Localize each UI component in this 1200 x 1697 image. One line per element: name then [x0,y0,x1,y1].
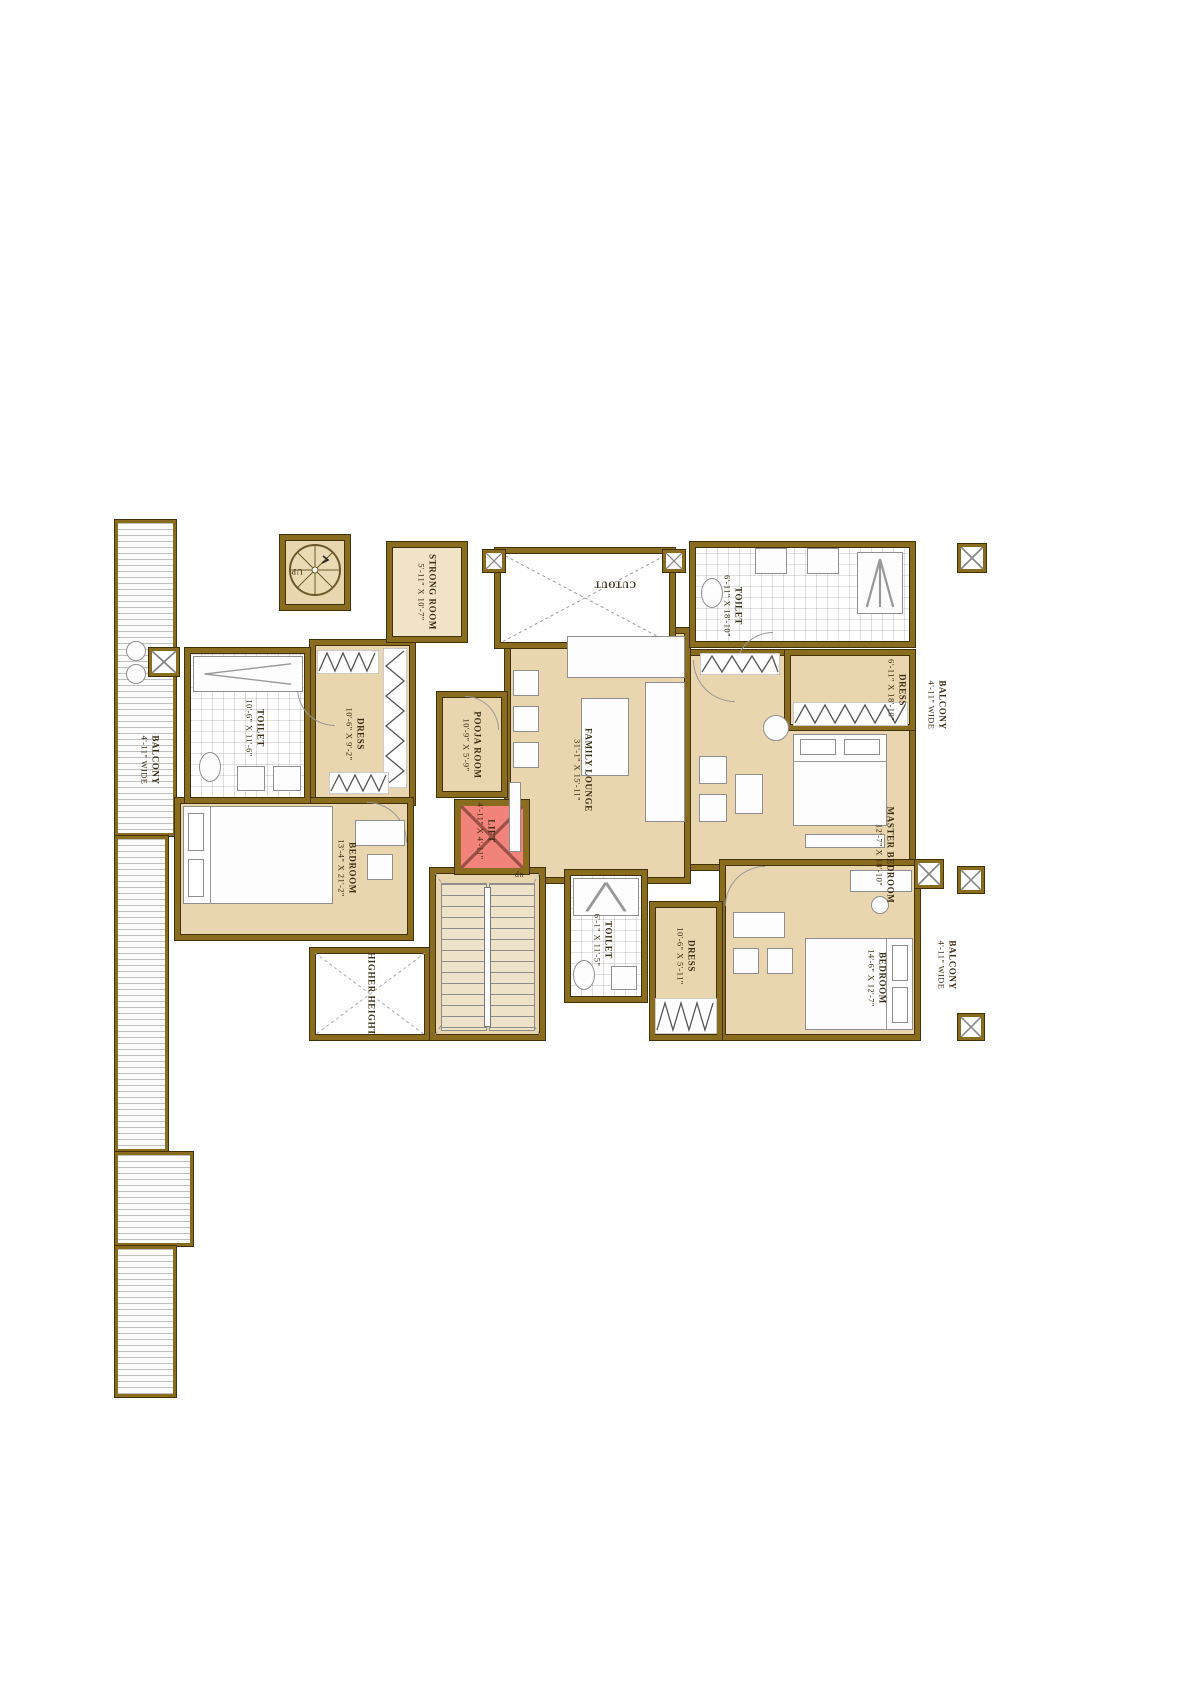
stair-flight [441,883,487,1031]
closet-zigzag-icon [383,648,407,788]
label-dress-master: DRESS 6'-11" X 18'-10" [886,659,907,721]
bed-icon [183,806,333,904]
shower-icon [573,878,639,916]
bed-icon [793,734,887,826]
label-stair-up: up [514,871,523,881]
basin-icon [611,966,637,990]
basin-icon [807,548,839,574]
round-table-icon [763,715,789,741]
closet-zigzag-icon [700,653,780,675]
planter-box-icon [483,550,505,572]
closet-zigzag-icon [329,772,389,794]
label-master-bedroom: MASTER BEDROOM 12'-7" X 18'-10" [874,807,895,904]
armchair-icon [513,706,539,732]
label-lift: LIFT 4'-11" X 4'-11" [475,803,496,860]
armchair-icon [367,854,393,880]
tv-console-icon [509,782,521,852]
bed-icon [805,938,913,1030]
planter-box-icon [958,867,984,893]
planter-box-icon [149,648,179,676]
armchair-icon [513,670,539,696]
label-pooja-room: POOJA ROOM 10'-9" X 5'-9" [461,711,482,778]
label-cutout-top: CUTOUT [594,578,636,589]
planter-box-icon [915,860,943,888]
sofa-icon [567,636,685,678]
dresser-icon [805,834,885,848]
bathtub-icon [193,656,303,692]
label-bedroom-left: BEDROOM 13'-4" X 21'-2" [336,839,357,897]
sofa-icon [355,820,405,846]
armchair-icon [735,774,763,814]
label-toilet-bottom: TOILET 6'-1" X 11'-5" [592,914,613,967]
label-cutout-bottom: HIGHER HEIGHT [365,952,376,1036]
armchair-icon [767,948,793,974]
room-staircase [430,868,545,1040]
label-strong-room: STRONG ROOM 5'-11" X 10'-7" [416,554,437,630]
label-toilet-left: TOILET 10'-6" X 11'-6" [244,699,265,756]
floor-plan-canvas: STRONG ROOM 5'-11" X 10'-7" CUTOUT TOILE… [0,0,1200,1697]
sofa-icon [733,912,785,938]
planter-circle [126,641,146,661]
basin-icon [237,766,265,791]
sofa-icon [645,682,685,822]
stair-flight [489,883,535,1031]
basin-icon [273,766,301,791]
label-bedroom-bottom: BEDROOM 14'-6" X 12'-7" [866,949,887,1007]
wc-icon [199,752,221,782]
floor-plan: STRONG ROOM 5'-11" X 10'-7" CUTOUT TOILE… [115,520,995,1050]
planter-circle [126,664,146,684]
label-toilet-master: TOILET 6'-11" X 18'-10" [722,575,743,637]
planter-box-icon [663,550,685,572]
label-balcony-right: BALCONY 4'-11" WIDE [926,680,947,729]
armchair-icon [513,742,539,768]
armchair-icon [699,794,727,822]
shower-icon [857,552,903,614]
balcony-right [115,836,168,1152]
label-dress-left: DRESS 10'-6" X 9'-2" [344,708,365,761]
planter-box-icon [958,544,986,572]
planter-box-icon [958,1014,984,1040]
closet-zigzag-icon [655,998,717,1034]
label-balcony-left: BALCONY 4'-11" WIDE [139,735,160,784]
closet-zigzag-icon [317,650,379,674]
label-spiral-up: UP [291,567,303,577]
label-balcony-bottom: BALCONY 4'-11" WIDE [936,940,957,989]
balcony-left [115,520,176,836]
room-cutout-top [495,548,675,648]
label-dress-bottom: DRESS 10'-6" X 5'-11" [675,927,696,984]
wc-icon [701,578,723,608]
armchair-icon [733,948,759,974]
balcony-bottom-right [115,1246,176,1397]
armchair-icon [699,756,727,784]
basin-icon [755,548,787,574]
balcony-bottom-left [115,1152,193,1246]
label-family-lounge: FAMILY LOUNGE 31'-1" X 15'-11" [572,728,593,812]
stair-rail [484,887,491,1027]
cutout-cross-icon [500,553,670,643]
